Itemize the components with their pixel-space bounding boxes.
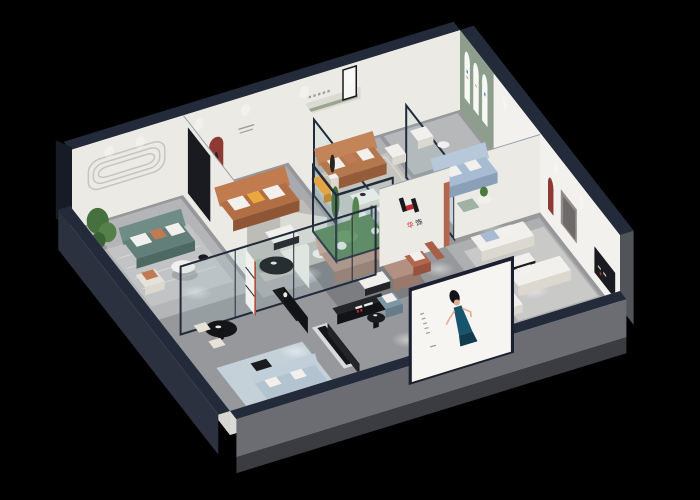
statue-figure (330, 155, 335, 173)
table-plant (480, 187, 488, 197)
showroom-render: 华饰 (0, 0, 700, 500)
display-shelf-red-pole (254, 260, 256, 316)
white-bowl (215, 326, 221, 329)
rust-door-frame (444, 181, 450, 247)
sideboard-vase (283, 292, 287, 297)
isometric-scene: 华饰 (0, 0, 700, 500)
table-cup (373, 314, 377, 316)
side-table (437, 141, 449, 148)
black-pedestal-table (367, 313, 385, 323)
round-side-table (478, 196, 492, 204)
